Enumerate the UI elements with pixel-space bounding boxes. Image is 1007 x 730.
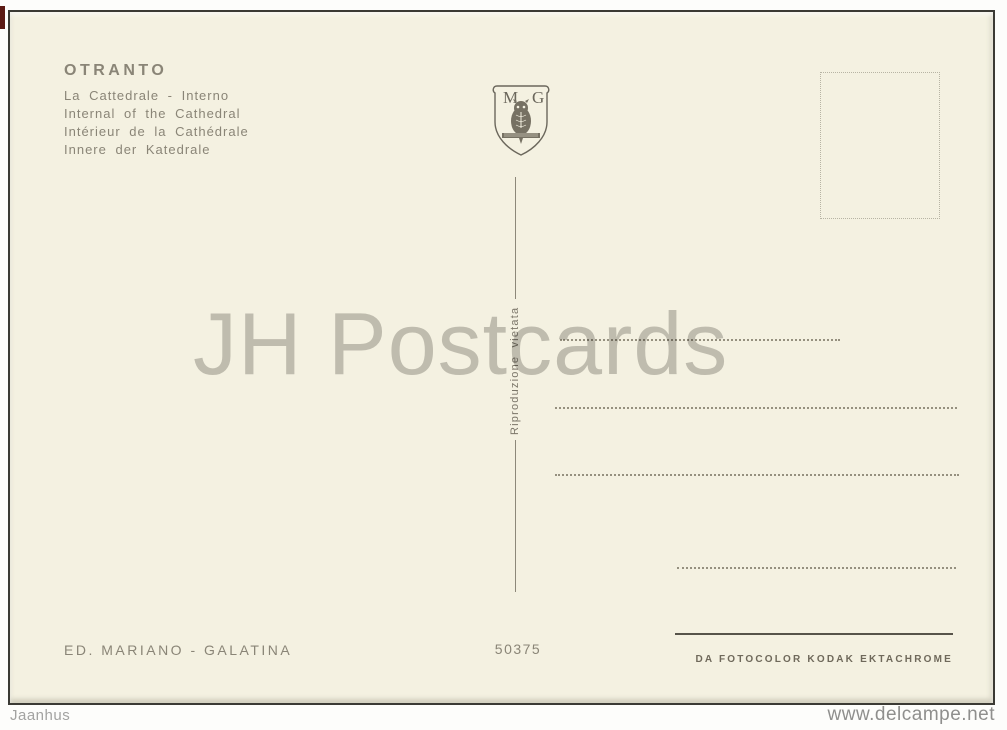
address-line-2 (555, 407, 957, 409)
film-credit: DA FOTOCOLOR KODAK EKTACHROME (655, 654, 953, 665)
signature-line (675, 633, 953, 635)
divider-line-top (515, 177, 516, 299)
address-line-1 (560, 339, 840, 341)
caption-german: Innere der Katedrale (64, 141, 249, 159)
divider-line-bottom (515, 440, 516, 592)
address-line-3 (555, 474, 959, 476)
stamp-box (820, 72, 940, 219)
owl-shield-emblem: M G (490, 82, 552, 162)
serial-number: 50375 (480, 641, 556, 657)
card-title: OTRANTO (64, 62, 249, 80)
footer-collector-name: Jaanhus (10, 707, 70, 724)
caption-english: Internal of the Cathedral (64, 105, 249, 123)
caption-italian: La Cattedrale - Interno (64, 87, 249, 105)
publisher-line: ED. MARIANO - GALATINA (64, 642, 292, 658)
caption-french: Intérieur de la Cathédrale (64, 123, 249, 141)
footer-site-url: www.delcampe.net (828, 704, 995, 726)
emblem-letter-g: G (532, 88, 544, 107)
address-line-4 (677, 567, 956, 569)
postcard-back: OTRANTO La Cattedrale - Interno Internal… (8, 10, 995, 705)
reproduction-notice: Riproduzione vietata (506, 302, 524, 440)
title-block: OTRANTO La Cattedrale - Interno Internal… (64, 62, 249, 159)
scan-edge-artifact (0, 6, 5, 29)
